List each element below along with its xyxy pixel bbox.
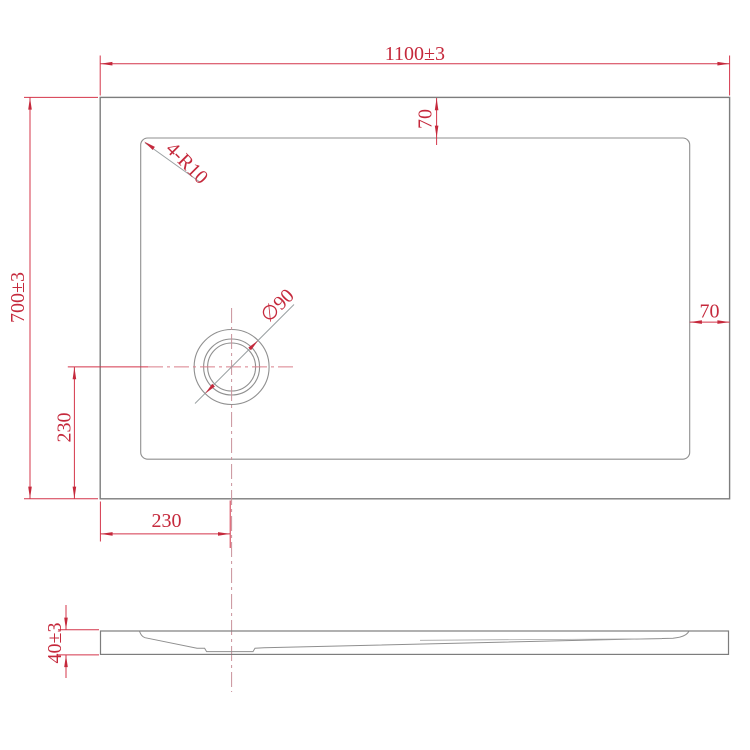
svg-text:230: 230 (54, 413, 76, 443)
svg-text:700±3: 700±3 (7, 272, 29, 323)
svg-text:1100±3: 1100±3 (385, 43, 445, 65)
svg-text:40±3: 40±3 (44, 623, 66, 664)
svg-text:70: 70 (415, 109, 437, 129)
svg-text:70: 70 (700, 301, 720, 323)
svg-text:230: 230 (152, 510, 182, 532)
